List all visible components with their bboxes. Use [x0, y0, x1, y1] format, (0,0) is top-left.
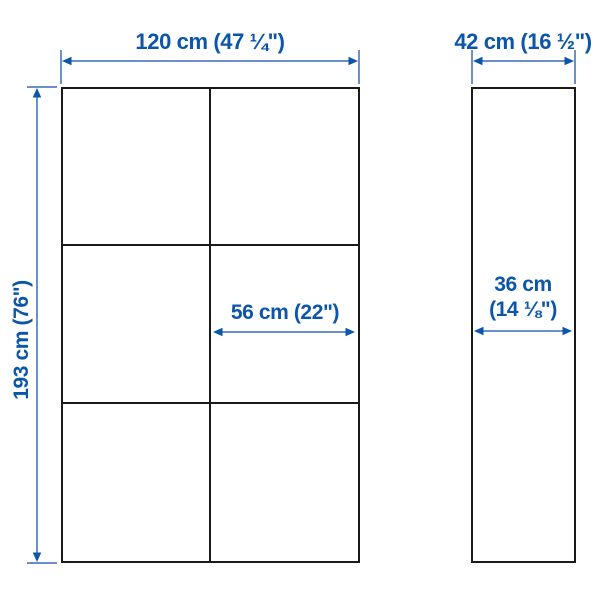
interior-depth-line1: 36 cm	[448, 272, 598, 297]
front-view-compartment	[63, 89, 211, 246]
dimension-diagram: 120 cm (47 ¼") 42 cm (16 ½") 193 cm (76"…	[0, 0, 600, 600]
arrowhead-right-icon	[349, 57, 359, 66]
arrowhead-up-icon	[33, 88, 42, 98]
arrowhead-left-icon	[473, 57, 483, 66]
depth-dimension-arrow	[472, 50, 575, 84]
interior-depth-line2: (14 ⅛")	[448, 297, 598, 322]
width-dimension-arrow	[61, 50, 359, 84]
arrowhead-right-icon	[565, 57, 575, 66]
height-dimension-label: 193 cm (76")	[10, 268, 34, 412]
side-view-outline	[471, 87, 576, 563]
front-view-compartment	[63, 404, 211, 561]
arrowhead-down-icon	[33, 553, 42, 563]
interior-depth-dimension-label: 36 cm (14 ⅛")	[448, 272, 598, 322]
depth-dimension-label: 42 cm (16 ½")	[433, 29, 600, 55]
section-width-dimension-label: 56 cm (22")	[210, 301, 360, 325]
front-view-compartment	[211, 404, 359, 561]
width-dimension-label: 120 cm (47 ¼")	[60, 29, 360, 55]
front-view-outline	[61, 87, 360, 563]
front-view-compartment	[211, 89, 359, 246]
arrowhead-left-icon	[62, 57, 72, 66]
front-view-compartment	[63, 246, 211, 403]
